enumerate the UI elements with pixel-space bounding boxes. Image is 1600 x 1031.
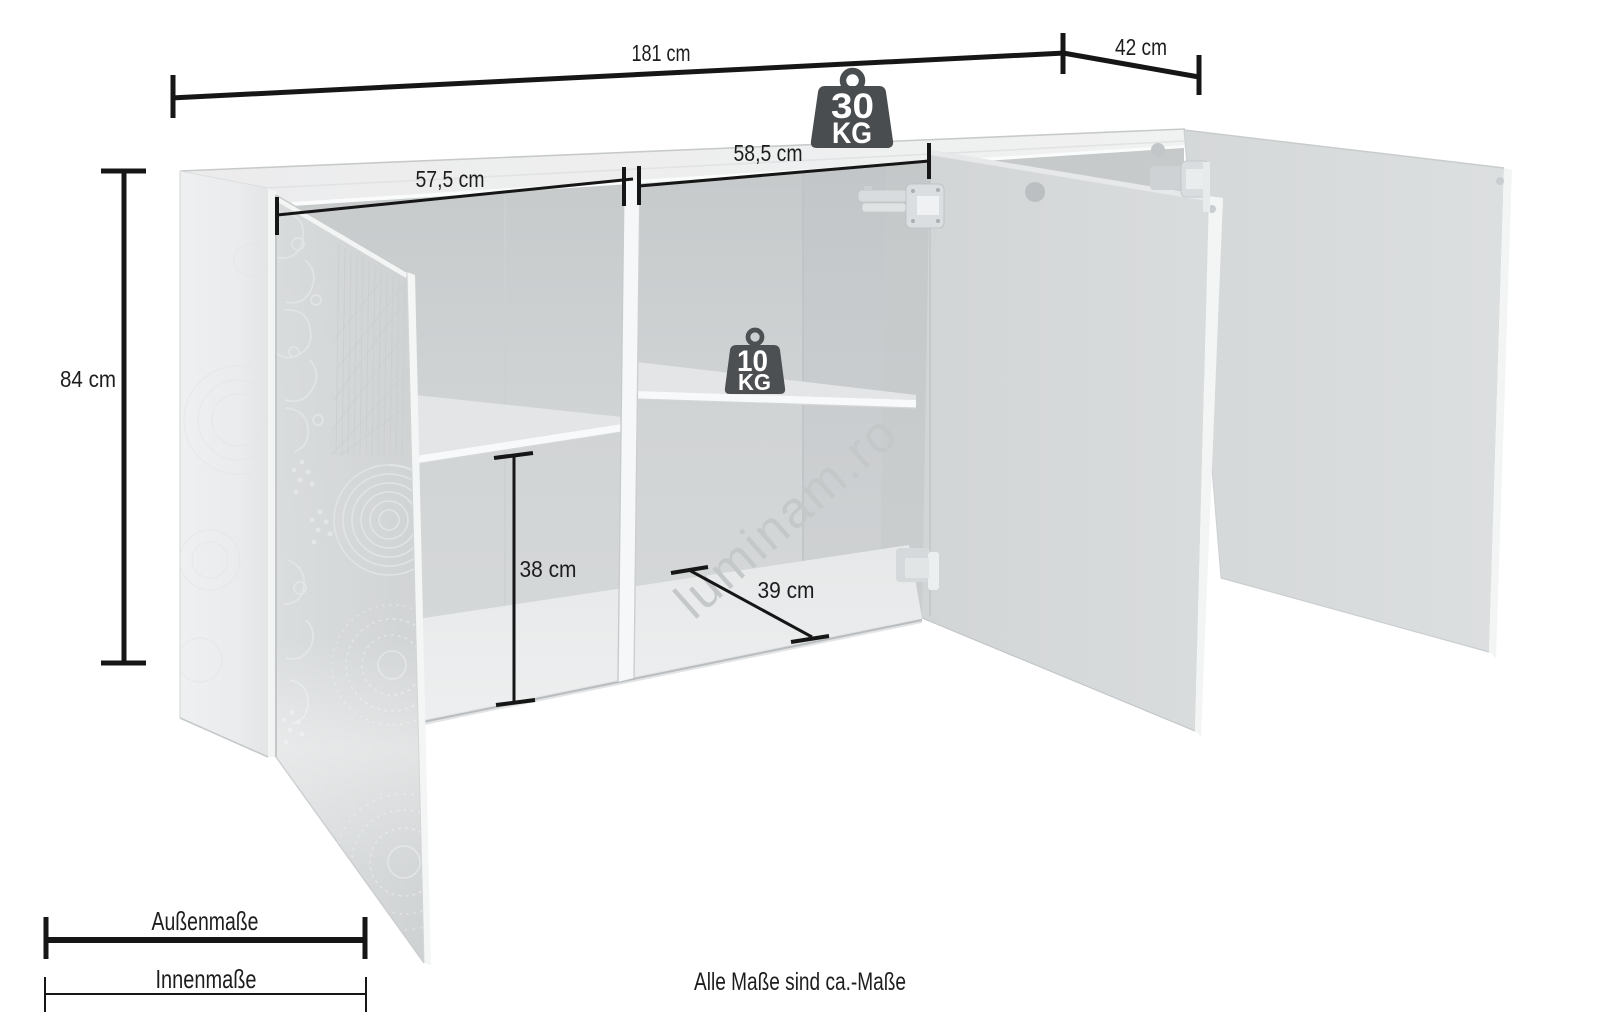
svg-text:42 cm: 42 cm [1115, 34, 1167, 60]
svg-text:KG: KG [738, 369, 771, 395]
svg-text:Innenmaße: Innenmaße [156, 964, 257, 994]
svg-text:Alle Maße sind ca.-Maße: Alle Maße sind ca.-Maße [694, 968, 906, 996]
svg-text:58,5 cm: 58,5 cm [734, 140, 803, 166]
svg-text:57,5 cm: 57,5 cm [416, 166, 485, 192]
svg-text:39 cm: 39 cm [758, 577, 815, 603]
svg-text:38 cm: 38 cm [520, 556, 577, 582]
svg-text:84 cm: 84 cm [60, 366, 116, 392]
svg-text:KG: KG [832, 117, 872, 150]
svg-text:181 cm: 181 cm [632, 40, 691, 66]
svg-text:Außenmaße: Außenmaße [152, 906, 259, 936]
